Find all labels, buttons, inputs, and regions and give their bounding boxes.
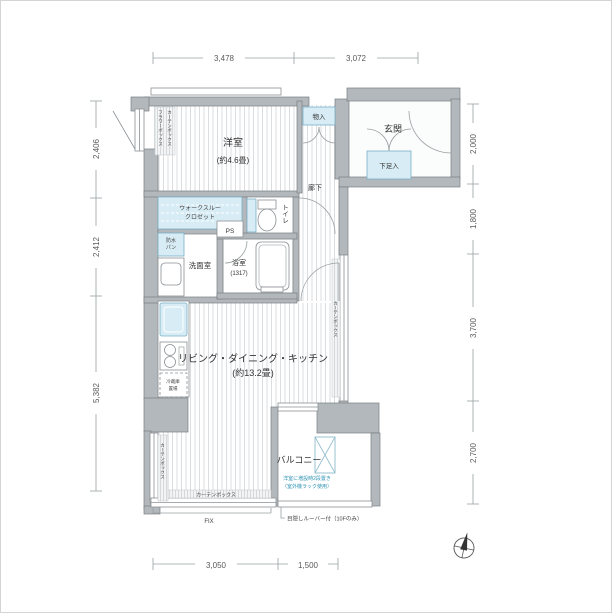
compass-icon xyxy=(452,530,477,560)
balcony-label: バルコニー xyxy=(277,455,322,465)
wall xyxy=(297,101,302,193)
bousui-label-2: パン xyxy=(166,245,176,251)
wall xyxy=(144,299,159,399)
wall xyxy=(347,88,460,101)
curtain-box-label: カーテンボックス xyxy=(160,443,166,480)
floor-plan-image: 洋室 (約4.6畳) 物入 玄関 下足入 廊下 トイレ ウォークスルー クロゼッ… xyxy=(0,0,612,613)
fix-label: FIX xyxy=(204,519,213,525)
wall xyxy=(335,99,349,179)
wall xyxy=(144,97,309,106)
compass-needle xyxy=(460,532,471,551)
yoshitsu-size-label: (約4.6畳) xyxy=(217,155,250,165)
yokushitsu-size-label: (1317) xyxy=(230,271,247,277)
rouka-label: 廊下 xyxy=(308,183,322,192)
wall xyxy=(217,293,297,299)
refrigerator-label-1: 冷蔵庫 xyxy=(166,378,180,385)
getabako-label: 下足入 xyxy=(379,162,399,170)
dim-right-3: 3,700 xyxy=(469,317,478,338)
balcony-note-2: （室外機ラック使用） xyxy=(282,483,332,490)
dim-left-3-group: 5,382 xyxy=(90,372,101,414)
dim-right-3-group: 3,700 xyxy=(467,307,478,349)
curtain-box-label: カーテンボックス xyxy=(333,301,339,338)
senmenshitsu-label: 洗面室 xyxy=(189,260,212,270)
ps-label: PS xyxy=(226,228,235,235)
dim-right-4: 2,700 xyxy=(469,442,478,463)
toilet-counter xyxy=(247,199,256,232)
monoire-label: 物入 xyxy=(313,112,327,121)
wall xyxy=(371,433,380,506)
floor-plan-svg: 洋室 (約4.6畳) 物入 玄関 下足入 廊下 トイレ ウォークスルー クロゼッ… xyxy=(1,1,612,614)
dim-right-1: 2,000 xyxy=(469,133,478,154)
ldk-label: リビング・ダイニング・キッチン xyxy=(178,352,328,365)
curtain-box-label: カーテンボックス xyxy=(167,110,173,147)
dim-top-2: 3,072 xyxy=(346,54,367,63)
wall xyxy=(217,239,223,299)
dim-left-2: 2,412 xyxy=(92,236,101,257)
toilet-tank xyxy=(258,200,276,209)
toire-label: トイレ xyxy=(281,204,289,224)
dim-right-2: 1,800 xyxy=(469,208,478,229)
wall xyxy=(317,403,379,433)
dim-top-1: 3,478 xyxy=(214,54,235,63)
louver-label: 目隠しルーバー付（10Fのみ） xyxy=(287,515,362,523)
wall xyxy=(144,191,299,197)
yokushitsu-label: 浴室 xyxy=(232,258,246,267)
dim-right-1-group: 2,000 xyxy=(467,123,478,165)
bousui-label-1: 防水 xyxy=(166,237,176,244)
bath-step xyxy=(261,287,283,292)
dim-left-1-group: 2,406 xyxy=(90,128,101,170)
dim-left-1: 2,406 xyxy=(92,138,101,159)
wall xyxy=(144,398,188,432)
refrigerator-label-2: 置場 xyxy=(169,385,178,392)
wall xyxy=(451,99,460,179)
wall xyxy=(144,149,158,299)
wall xyxy=(293,197,299,301)
bay-diagonal xyxy=(113,111,135,149)
toilet-bowl xyxy=(258,209,276,231)
dim-bottom-1: 3,050 xyxy=(206,561,227,570)
flower-box-label: フラワーボックス xyxy=(158,110,164,147)
wtc-label-2: クロゼット xyxy=(185,213,215,221)
balcony-rail xyxy=(278,501,372,507)
ldk-size-label: (約13.2畳) xyxy=(232,367,274,378)
dim-right-2-group: 1,800 xyxy=(467,198,478,240)
vanity-basin xyxy=(161,263,181,285)
louver-leader xyxy=(281,507,285,518)
balcony-note-1: 洋室に増設時2段置き xyxy=(283,475,331,482)
wtc-label-1: ウォークスルー xyxy=(179,204,221,212)
dim-left-3: 5,382 xyxy=(92,382,101,403)
yoshitsu-label: 洋室 xyxy=(223,136,243,149)
wall xyxy=(339,187,348,255)
bathtub xyxy=(256,242,289,290)
dim-right-4-group: 2,700 xyxy=(467,432,478,474)
upper-rail-window xyxy=(151,88,281,95)
curtain-box-label: カーテンボックス xyxy=(196,492,236,499)
genkan-label: 玄関 xyxy=(384,123,402,134)
dim-left-2-group: 2,412 xyxy=(90,226,101,268)
dim-bottom-2: 1,500 xyxy=(298,561,319,570)
